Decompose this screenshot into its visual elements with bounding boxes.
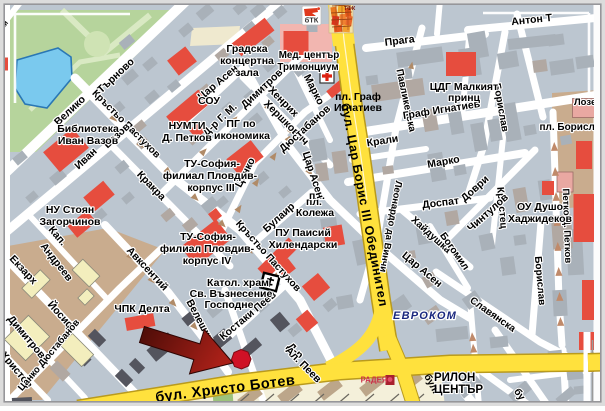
- svg-text:ПГ по: ПГ по: [226, 118, 255, 130]
- svg-text:зала: зала: [235, 67, 259, 79]
- svg-text:ЧПК Делта: ЧПК Делта: [114, 303, 170, 315]
- svg-text:Господне: Господне: [204, 299, 253, 311]
- svg-text:принц: принц: [448, 92, 481, 104]
- svg-text:филиал Пловдив-: филиал Пловдив-: [163, 170, 258, 182]
- svg-text:Градска: Градска: [226, 43, 267, 55]
- svg-text:икономика: икономика: [214, 130, 270, 142]
- svg-text:Загорчинов: Загорчинов: [40, 216, 102, 228]
- svg-text:корпус IV: корпус IV: [183, 255, 232, 267]
- svg-text:бТК: бТК: [305, 16, 319, 25]
- svg-text:Колежа: Колежа: [296, 207, 334, 219]
- svg-text:РИЛОН: РИЛОН: [434, 372, 475, 384]
- svg-text:концертна: концертна: [220, 55, 274, 67]
- svg-text:ЕВРОКОМ: ЕВРОКОМ: [393, 310, 457, 322]
- svg-text:Иван Вазов: Иван Вазов: [58, 135, 119, 147]
- svg-text:ОУ Душо: ОУ Душо: [517, 201, 563, 213]
- svg-text:филиал Пловдив-: филиал Пловдив-: [160, 243, 255, 255]
- svg-text:ЦЕНТЪР: ЦЕНТЪР: [434, 384, 483, 396]
- svg-text:Мед. център: Мед. център: [279, 50, 340, 61]
- svg-text:ТУ-София-: ТУ-София-: [180, 231, 236, 243]
- svg-text:ТУ-София-: ТУ-София-: [184, 158, 240, 170]
- svg-text:ПУ Паисий: ПУ Паисий: [275, 227, 331, 239]
- svg-text:Д. Петков: Д. Петков: [162, 132, 212, 144]
- svg-text:РАДЕЯ: РАДЕЯ: [361, 376, 388, 385]
- svg-text:ТФК: ТФК: [344, 6, 356, 12]
- svg-text:Библиотека: Библиотека: [57, 123, 119, 135]
- svg-text:Хаджидеков: Хаджидеков: [508, 213, 572, 225]
- svg-text:корпус III: корпус III: [187, 182, 234, 194]
- svg-text:СОУ: СОУ: [198, 95, 220, 107]
- svg-text:Тримонциум: Тримонциум: [277, 62, 338, 73]
- svg-text:Хилендарски: Хилендарски: [269, 239, 338, 251]
- svg-text:НУМТИ: НУМТИ: [169, 120, 206, 132]
- svg-text:НУ Стоян: НУ Стоян: [46, 204, 94, 216]
